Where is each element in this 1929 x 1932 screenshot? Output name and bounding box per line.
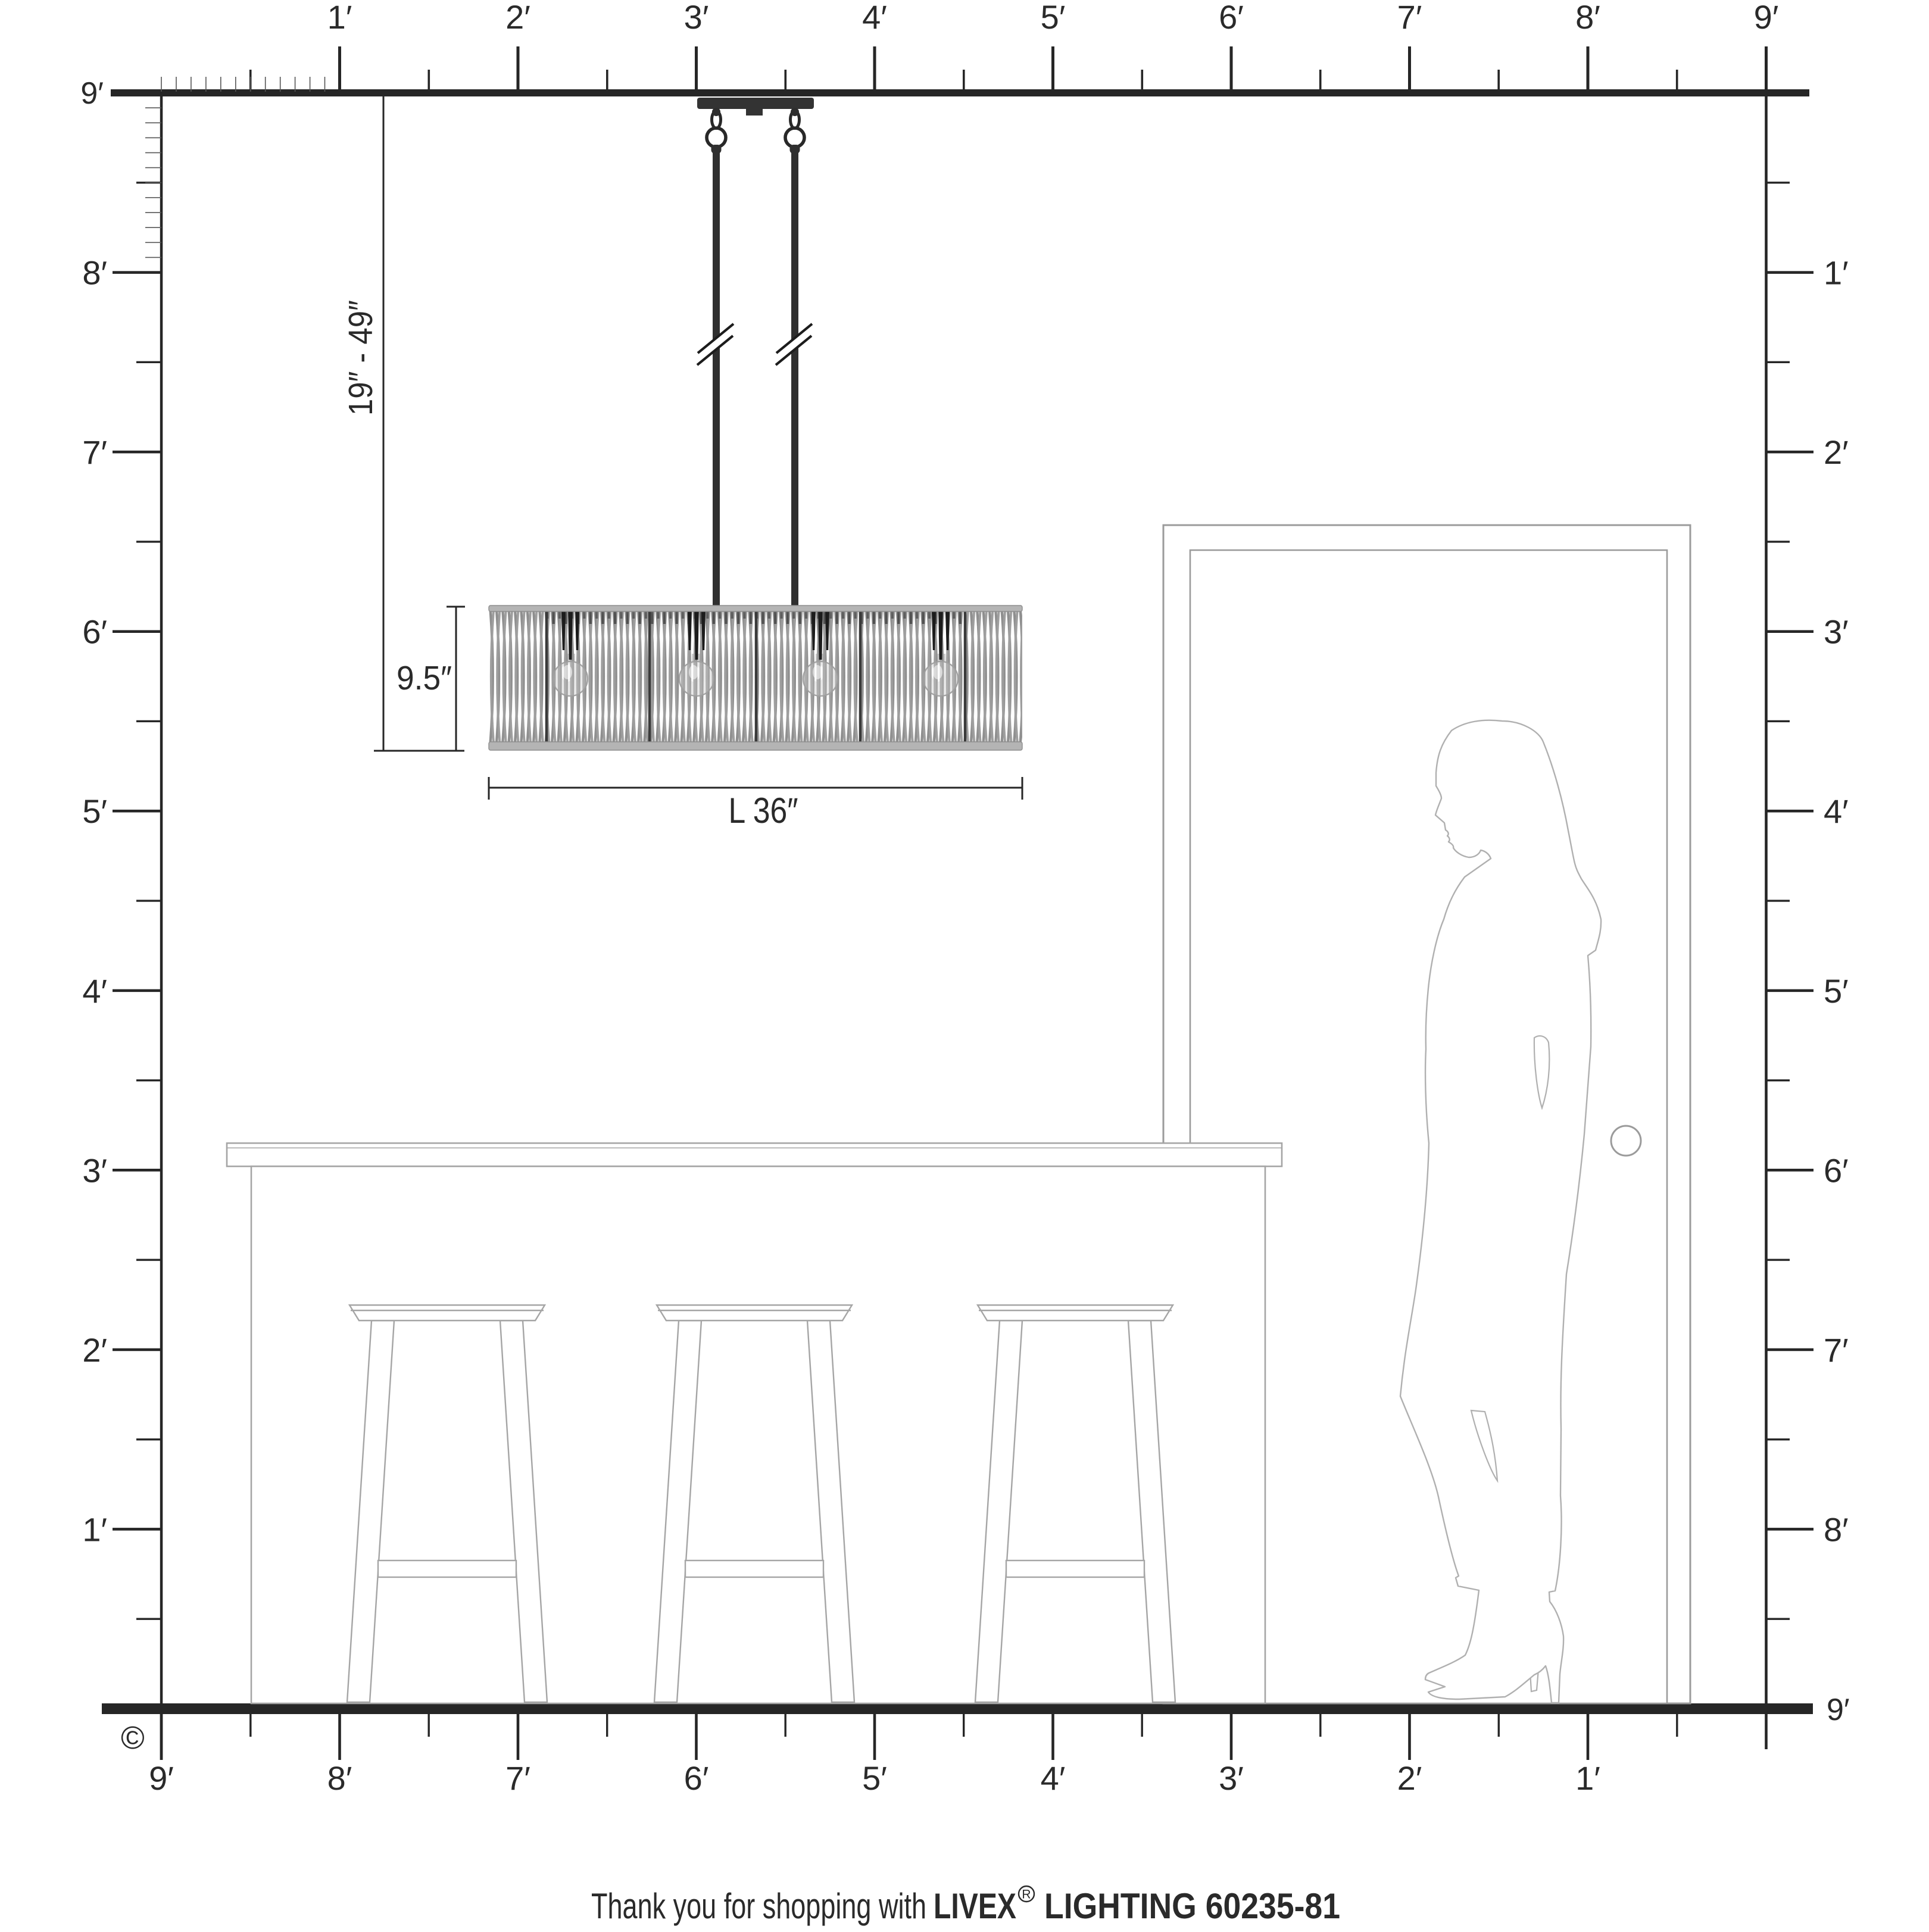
svg-text:4′: 4′ bbox=[1824, 792, 1849, 830]
svg-text:7′: 7′ bbox=[82, 433, 107, 471]
svg-text:9′: 9′ bbox=[80, 76, 104, 111]
svg-text:9′: 9′ bbox=[1827, 1693, 1850, 1727]
svg-text:9′: 9′ bbox=[1754, 0, 1779, 36]
svg-text:6′: 6′ bbox=[684, 1759, 709, 1797]
svg-text:6′: 6′ bbox=[1824, 1151, 1849, 1189]
svg-text:7′: 7′ bbox=[1397, 0, 1422, 36]
svg-text:1′: 1′ bbox=[82, 1510, 107, 1548]
svg-text:Thank you for shopping with: Thank you for shopping with bbox=[591, 1886, 926, 1926]
svg-text:8′: 8′ bbox=[1575, 0, 1600, 36]
svg-text:4′: 4′ bbox=[82, 972, 107, 1010]
svg-text:9.5″: 9.5″ bbox=[397, 659, 452, 697]
svg-text:5′: 5′ bbox=[1824, 972, 1849, 1010]
svg-text:3′: 3′ bbox=[684, 0, 709, 36]
svg-text:8′: 8′ bbox=[327, 1759, 352, 1797]
svg-text:4′: 4′ bbox=[1041, 1759, 1066, 1797]
svg-text:2′: 2′ bbox=[1397, 1759, 1422, 1797]
svg-text:5′: 5′ bbox=[862, 1759, 887, 1797]
svg-text:LIVEX: LIVEX bbox=[934, 1886, 1016, 1926]
svg-text:8′: 8′ bbox=[1824, 1510, 1849, 1548]
svg-text:19″ - 49″: 19″ - 49″ bbox=[342, 300, 380, 416]
svg-text:2′: 2′ bbox=[505, 0, 530, 36]
svg-text:3′: 3′ bbox=[1824, 613, 1849, 651]
svg-text:6′: 6′ bbox=[82, 613, 107, 651]
svg-text:6′: 6′ bbox=[1219, 0, 1244, 36]
svg-text:9′: 9′ bbox=[149, 1759, 174, 1797]
svg-text:©: © bbox=[121, 1720, 145, 1756]
svg-text:1′: 1′ bbox=[327, 0, 352, 36]
svg-text:1′: 1′ bbox=[1824, 254, 1849, 292]
svg-text:5′: 5′ bbox=[1041, 0, 1066, 36]
svg-text:5′: 5′ bbox=[82, 792, 107, 830]
svg-text:7′: 7′ bbox=[1824, 1331, 1849, 1369]
svg-text:3′: 3′ bbox=[82, 1151, 107, 1189]
svg-text:2′: 2′ bbox=[1824, 433, 1849, 471]
svg-text:7′: 7′ bbox=[505, 1759, 530, 1797]
svg-text:4′: 4′ bbox=[862, 0, 887, 36]
svg-text:R: R bbox=[1022, 1888, 1031, 1902]
svg-text:2′: 2′ bbox=[82, 1331, 107, 1369]
svg-text:8′: 8′ bbox=[82, 254, 107, 292]
svg-text:L 36″: L 36″ bbox=[729, 791, 798, 831]
svg-text:LIGHTING 60235-81: LIGHTING 60235-81 bbox=[1044, 1886, 1340, 1926]
svg-text:1′: 1′ bbox=[1575, 1759, 1600, 1797]
svg-text:3′: 3′ bbox=[1219, 1759, 1244, 1797]
